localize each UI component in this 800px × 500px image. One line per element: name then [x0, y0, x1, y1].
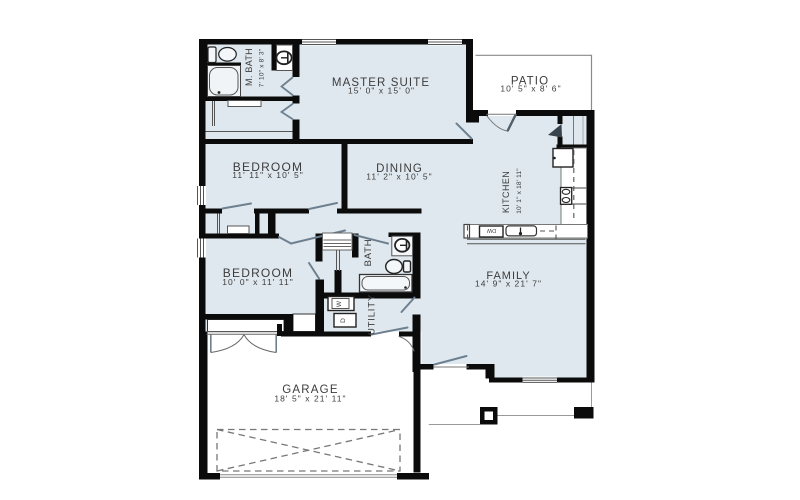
svg-text:10' 0" x 11' 11": 10' 0" x 11' 11" — [222, 277, 294, 287]
svg-text:UTILITY: UTILITY — [367, 294, 378, 335]
svg-text:D: D — [340, 318, 347, 323]
svg-text:M. BATH: M. BATH — [244, 48, 254, 86]
svg-text:10' 5" x 8' 6": 10' 5" x 8' 6" — [500, 84, 561, 94]
svg-text:KITCHEN: KITCHEN — [501, 171, 511, 213]
svg-text:11' 11" x 10' 5": 11' 11" x 10' 5" — [232, 170, 304, 180]
svg-text:W: W — [336, 300, 343, 307]
svg-text:DW: DW — [486, 227, 496, 233]
svg-text:15' 0" x 15' 0": 15' 0" x 15' 0" — [348, 86, 415, 96]
svg-text:7' 10" x 8' 3": 7' 10" x 8' 3" — [259, 48, 266, 87]
svg-text:18' 5" x 21' 11": 18' 5" x 21' 11" — [274, 394, 346, 404]
svg-text:11' 2" x 10' 5": 11' 2" x 10' 5" — [366, 172, 432, 182]
svg-text:14' 9" x 21' 7": 14' 9" x 21' 7" — [475, 279, 542, 289]
svg-text:BATH: BATH — [363, 239, 374, 267]
svg-text:10' 1" x 18' 11": 10' 1" x 18' 11" — [516, 168, 523, 214]
